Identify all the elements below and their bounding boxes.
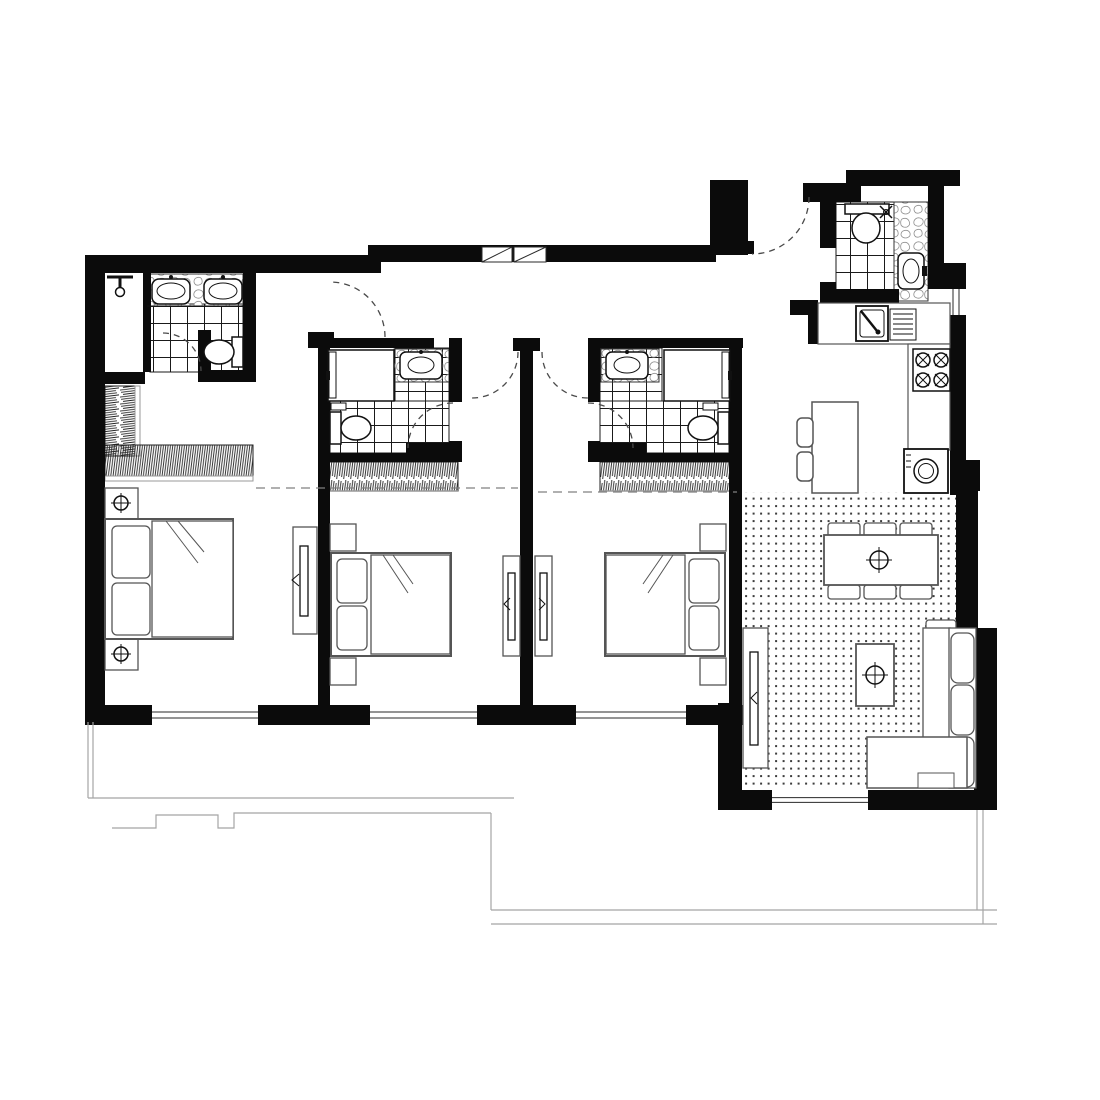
wall xyxy=(746,241,754,254)
bath2-toilet-tank xyxy=(330,412,341,444)
wall xyxy=(710,180,748,255)
wc-toilet-bowl xyxy=(852,213,880,243)
bath3-toilet-bowl xyxy=(688,416,718,440)
bedroom2-window xyxy=(370,705,477,725)
bedroom3-door-swing xyxy=(542,352,588,398)
bed2-closet xyxy=(322,462,458,491)
bath2-toilet-paper xyxy=(331,403,346,410)
island-stool xyxy=(797,418,813,447)
hallway-vent-window-a xyxy=(482,247,512,262)
bedroom1-window xyxy=(152,705,258,725)
wall xyxy=(318,338,434,348)
sofa-chaise-cushion xyxy=(918,773,954,788)
master-suite-door-swing xyxy=(330,282,385,337)
dining-chair xyxy=(900,585,932,599)
bedroom3-window xyxy=(576,705,686,725)
island-stool xyxy=(797,452,813,481)
wall xyxy=(85,255,105,722)
master-closet-main-front xyxy=(105,476,253,481)
bed3-nightstand xyxy=(700,658,726,685)
bath2-shower-door xyxy=(329,352,336,398)
bed3-pillow xyxy=(689,606,719,650)
bed3-tv-screen xyxy=(540,573,547,640)
wall xyxy=(956,480,978,635)
bed3-closet xyxy=(600,462,731,491)
master-shower-head-icon xyxy=(107,277,133,288)
bath2-shower-handle xyxy=(326,371,330,380)
bath3-toilet-paper xyxy=(703,403,718,410)
bath3-toilet-tank xyxy=(718,412,729,444)
layer-kitchen xyxy=(797,303,950,493)
bedroom2-window xyxy=(370,705,477,725)
wall xyxy=(868,790,997,810)
bedroom1-window xyxy=(152,705,258,725)
wall xyxy=(588,338,743,348)
bed2-pillow xyxy=(337,559,367,603)
kitchen-island xyxy=(812,402,858,493)
bath3-sink-faucet xyxy=(625,350,629,354)
master-shower-head-icon xyxy=(116,288,125,297)
floor-plan-drawing xyxy=(0,0,1100,1100)
bath2-sink-faucet xyxy=(419,350,423,354)
wall xyxy=(243,273,256,382)
bath3-sink xyxy=(606,352,648,379)
bed2-tv-screen xyxy=(508,573,515,640)
floor-plan-page xyxy=(0,0,1100,1100)
dining-chair xyxy=(828,585,860,599)
bed1-tv-screen xyxy=(300,546,308,616)
wc-sink xyxy=(898,253,924,289)
wall xyxy=(85,705,152,725)
entry-door-swing xyxy=(752,197,809,254)
sofa-cushion xyxy=(951,633,974,683)
bath3-shower xyxy=(664,350,730,401)
wall xyxy=(308,332,334,348)
bed3-duvet xyxy=(606,555,685,654)
bed2-nightstand xyxy=(330,524,356,551)
bed2-nightstand xyxy=(330,658,356,685)
living-room-window xyxy=(772,792,868,808)
bath1-sink-left-faucet xyxy=(169,275,173,279)
wall xyxy=(820,202,836,248)
wall xyxy=(406,443,458,453)
wall xyxy=(686,705,743,725)
wall xyxy=(729,338,742,462)
wall xyxy=(520,350,533,720)
sofa-cushion xyxy=(951,685,974,735)
bedroom2-door-swing xyxy=(472,352,518,398)
hallway-vent-window-b xyxy=(514,247,546,262)
bed2-pillow xyxy=(337,606,367,650)
bath2-toilet-bowl xyxy=(341,416,371,440)
wall xyxy=(597,443,646,453)
bed1-pillow xyxy=(112,526,150,578)
wall xyxy=(928,263,966,289)
bed3-pillow xyxy=(689,559,719,603)
wall xyxy=(513,338,540,351)
bedroom3-window xyxy=(576,705,686,725)
bed1-pillow xyxy=(112,583,150,635)
washing-machine-door xyxy=(914,459,938,483)
kitchen-faucet xyxy=(876,330,881,335)
wall xyxy=(588,453,731,462)
wall xyxy=(588,348,600,402)
wall xyxy=(105,372,145,384)
bed2-duvet xyxy=(371,555,450,654)
master-closet-main xyxy=(105,445,253,476)
bath3-shower-handle xyxy=(728,371,732,380)
bath3-shower-door xyxy=(722,352,729,398)
bath2-shower xyxy=(328,350,394,401)
living-room-window xyxy=(772,792,868,808)
bath2-sink xyxy=(400,352,442,379)
wall xyxy=(449,338,462,402)
bath1-sink-right-faucet xyxy=(221,275,225,279)
wc-sink-tap xyxy=(922,266,927,276)
building-outline-step xyxy=(112,813,491,828)
bed3-nightstand xyxy=(700,524,726,551)
wall xyxy=(143,273,151,372)
bath1-toilet-bowl xyxy=(204,340,234,364)
wall xyxy=(318,453,462,462)
wall xyxy=(974,628,997,795)
dining-chair xyxy=(864,585,896,599)
wall xyxy=(258,705,370,725)
wall xyxy=(790,300,818,315)
wall xyxy=(85,255,381,273)
wall xyxy=(729,462,742,705)
wall xyxy=(820,289,899,303)
